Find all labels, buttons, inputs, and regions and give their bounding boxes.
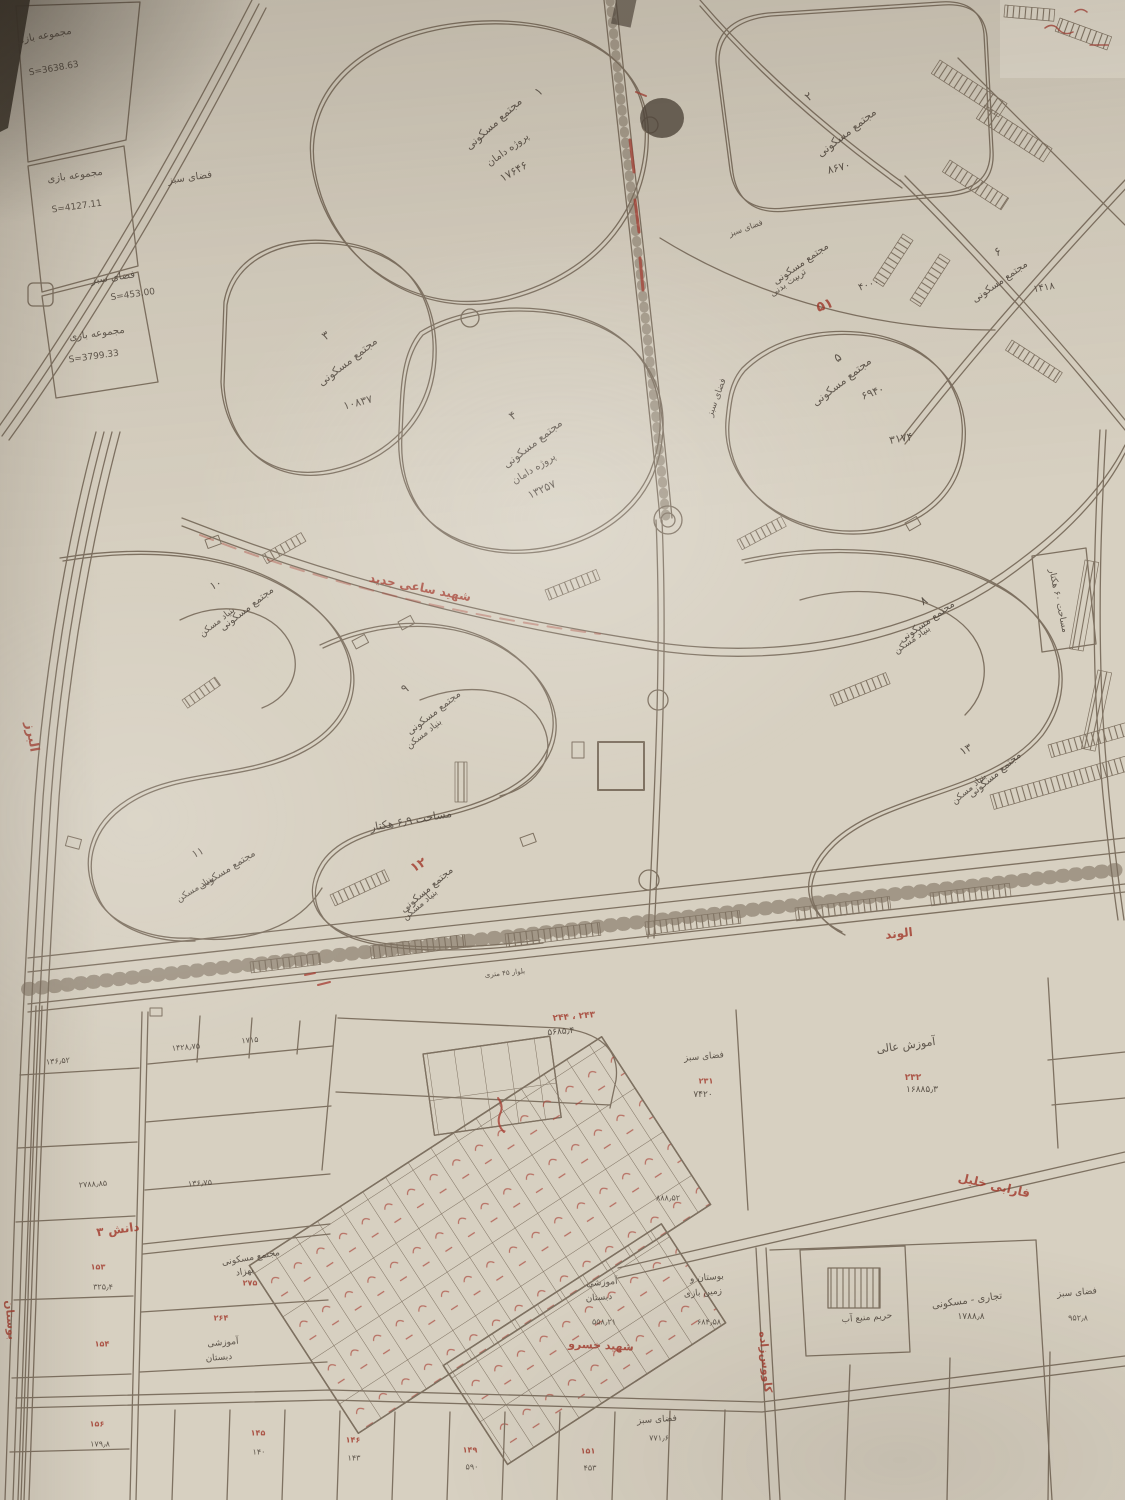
green-space-7: فضای سبز xyxy=(637,1415,678,1428)
lot-156-area: ۱۷۹٫۸ xyxy=(90,1441,110,1450)
green-space-3: فضای سبز xyxy=(728,219,764,239)
behzad-complex-red-no: ۲۷۵ xyxy=(243,1280,258,1289)
school2-area: ۵۵۸٫۲۱ xyxy=(592,1319,616,1328)
green-space-6-area: ۹۵۲٫۸ xyxy=(1068,1315,1088,1324)
complex6-title: مجتمع مسکونی xyxy=(970,259,1030,305)
school1-line2: دبستان xyxy=(205,1353,232,1365)
green-space-1: فضای سبز xyxy=(167,169,213,186)
lot-146-area: ۱۴۳ xyxy=(348,1455,361,1464)
street-alborz: البرز xyxy=(21,721,40,753)
complex4-no: ۴ xyxy=(507,409,520,424)
complex10-no: ۱۰ xyxy=(208,577,224,593)
park-line1: بوستان و xyxy=(690,1273,725,1286)
lot-153-area: ۳۲۵٫۴ xyxy=(93,1284,113,1293)
lot-149-no: ۱۴۹ xyxy=(463,1447,478,1456)
water-buffer-title: حریم منبع آب xyxy=(841,1312,892,1326)
complex9-no: ۹ xyxy=(399,682,411,697)
map-photo: مجموعه بازیS=3638.63مجموعه بازیS=4127.11… xyxy=(0,0,1125,1500)
complex13-no: ۱۳ xyxy=(958,742,974,758)
big-lot-area: ۵۶۸۵٫۴ xyxy=(547,1027,575,1039)
lot-156-no: ۱۵۶ xyxy=(90,1421,105,1430)
complex5-area2: ۳۱۷۴ xyxy=(888,431,913,447)
lot-149-area: ۵۹۰ xyxy=(466,1464,479,1473)
complex12-no: ۱۲ xyxy=(409,856,430,876)
complex6-no: ۶ xyxy=(992,245,1004,260)
commercial-area: ۱۷۸۸٫۸ xyxy=(957,1313,984,1323)
higher-education-red-no: ۲۳۲ xyxy=(905,1074,921,1084)
street-bustan: بوستان xyxy=(2,1300,18,1341)
complex5-area: ۶۹۴۰ xyxy=(860,383,886,402)
complex6-area: ۱۴۱۸ xyxy=(1032,281,1055,296)
lot-146-no: ۱۴۶ xyxy=(346,1437,361,1446)
complex2-no: ۲ xyxy=(803,90,816,105)
lot-area-6: ۸۸۸٫۵۲ xyxy=(656,1195,680,1204)
complex13-title: مجتمع مسکونی xyxy=(966,750,1023,800)
parcel-play1-title: مجموعه بازی xyxy=(16,26,73,47)
area-60ha-note: مساحت ۶۰ هکتار xyxy=(1045,568,1068,634)
green-space-2: فضای سبز xyxy=(90,269,136,286)
higher-education-title: آموزش عالی xyxy=(876,1036,936,1056)
complex1-area: ۱۷۶۴۶ xyxy=(498,159,530,184)
complex3-no: ۳ xyxy=(320,329,333,344)
parcel-play1-area: S=3638.63 xyxy=(28,61,79,80)
street-kavooszadeh: کاووس‌زاده xyxy=(756,1331,773,1393)
school2-line2: دبستان xyxy=(585,1293,612,1305)
lot-area-5: ۱۳۶٫۷۵ xyxy=(188,1179,213,1189)
complex3-title: مجتمع مسکونی xyxy=(316,335,380,389)
lot-area-1: ۱۴۲۸٫۷۵ xyxy=(171,1042,200,1053)
street-alvand: الوند xyxy=(885,926,914,942)
park-line2: زمین بازی xyxy=(684,1287,723,1300)
lot-154-no: ۱۵۴ xyxy=(95,1341,110,1350)
complex3-area: ۱۰۸۳۷ xyxy=(342,393,374,412)
school2-line1: آموزشی xyxy=(586,1278,618,1291)
green-space-5: فضای سبز xyxy=(684,1051,725,1064)
lot-145-no: ۱۴۵ xyxy=(251,1430,266,1439)
green-space-5-area: ۷۴۲۰ xyxy=(693,1091,712,1101)
road-width-note: بلوار ۴۵ متری xyxy=(485,968,526,980)
behzad-complex-sub: بهزاد xyxy=(235,1267,255,1280)
park-area: ۶۸۴٫۵۸ xyxy=(697,1319,721,1328)
green-space-4: فضای سبز xyxy=(707,378,730,419)
complex2-area: ۸۶۷۰ xyxy=(826,159,852,177)
complex1-no: ۱ xyxy=(532,85,545,99)
complex12-title: مجتمع مسکونی xyxy=(398,865,455,915)
green-space-2-area: S=453.00 xyxy=(110,288,156,304)
green-space-5-red-no: ۲۳۱ xyxy=(699,1078,714,1087)
complex11-sub: بنیاد مسکن xyxy=(175,875,216,906)
commercial-title: تجاری - مسکونی xyxy=(931,1291,1003,1312)
lot-area-4: ۲۷۸۸٫۸۵ xyxy=(79,1180,108,1191)
lot-153-no: ۱۵۳ xyxy=(91,1264,106,1273)
green-space-7-area: ۷۷۱٫۶ xyxy=(649,1435,669,1444)
street-main-boulevard: شهید ساعی جدید xyxy=(368,572,472,605)
lot-151-no: ۱۵۱ xyxy=(581,1448,596,1457)
complex8-no: ۸ xyxy=(918,594,930,609)
lot-145-area: ۱۴۰ xyxy=(253,1449,266,1458)
school1-line1: آموزشی xyxy=(207,1338,239,1351)
school1-red-no: ۲۶۴ xyxy=(214,1315,229,1324)
parcel-play3-title: مجموعه بازی xyxy=(69,325,126,344)
complex4-area: ۱۳۲۵۷ xyxy=(526,478,558,501)
parcel-play2-area: S=4127.11 xyxy=(51,200,102,217)
green-space-6: فضای سبز xyxy=(1057,1287,1098,1300)
street-shahid-khosro: شهید خسرو xyxy=(568,1338,634,1354)
parcel-play2-title: مجموعه بازی xyxy=(47,167,104,186)
big-lot-red-no: ۲۴۳ ، ۲۴۴ xyxy=(552,1011,595,1025)
street-farabi-khalil: فارابی خلیل xyxy=(957,1171,1031,1200)
complex2-title: مجتمع مسکونی xyxy=(815,106,879,160)
complex11-no: ۱۱ xyxy=(190,845,206,861)
higher-education-area: ۱۶۸۸۵٫۳ xyxy=(906,1086,938,1096)
lot-151-area: ۴۵۳ xyxy=(584,1465,597,1474)
sport-complex-area: ۴۰۰۰ xyxy=(857,276,881,293)
lot-area-3: ۱۳۶٫۵۲ xyxy=(46,1057,71,1068)
sport-complex-red-no: ۵۱ xyxy=(814,296,835,316)
area-69ha-note: مساحت ۶٫۹ هکتار xyxy=(369,808,453,834)
labels-layer: مجموعه بازیS=3638.63مجموعه بازیS=4127.11… xyxy=(0,0,1125,1500)
lot-area-2: ۱۷۱۵ xyxy=(241,1036,259,1046)
parcel-play3-area: S=3799.33 xyxy=(68,350,119,367)
complex5-no: ۵ xyxy=(832,351,845,366)
street-danesh3: دانش ۳ xyxy=(96,1220,141,1239)
